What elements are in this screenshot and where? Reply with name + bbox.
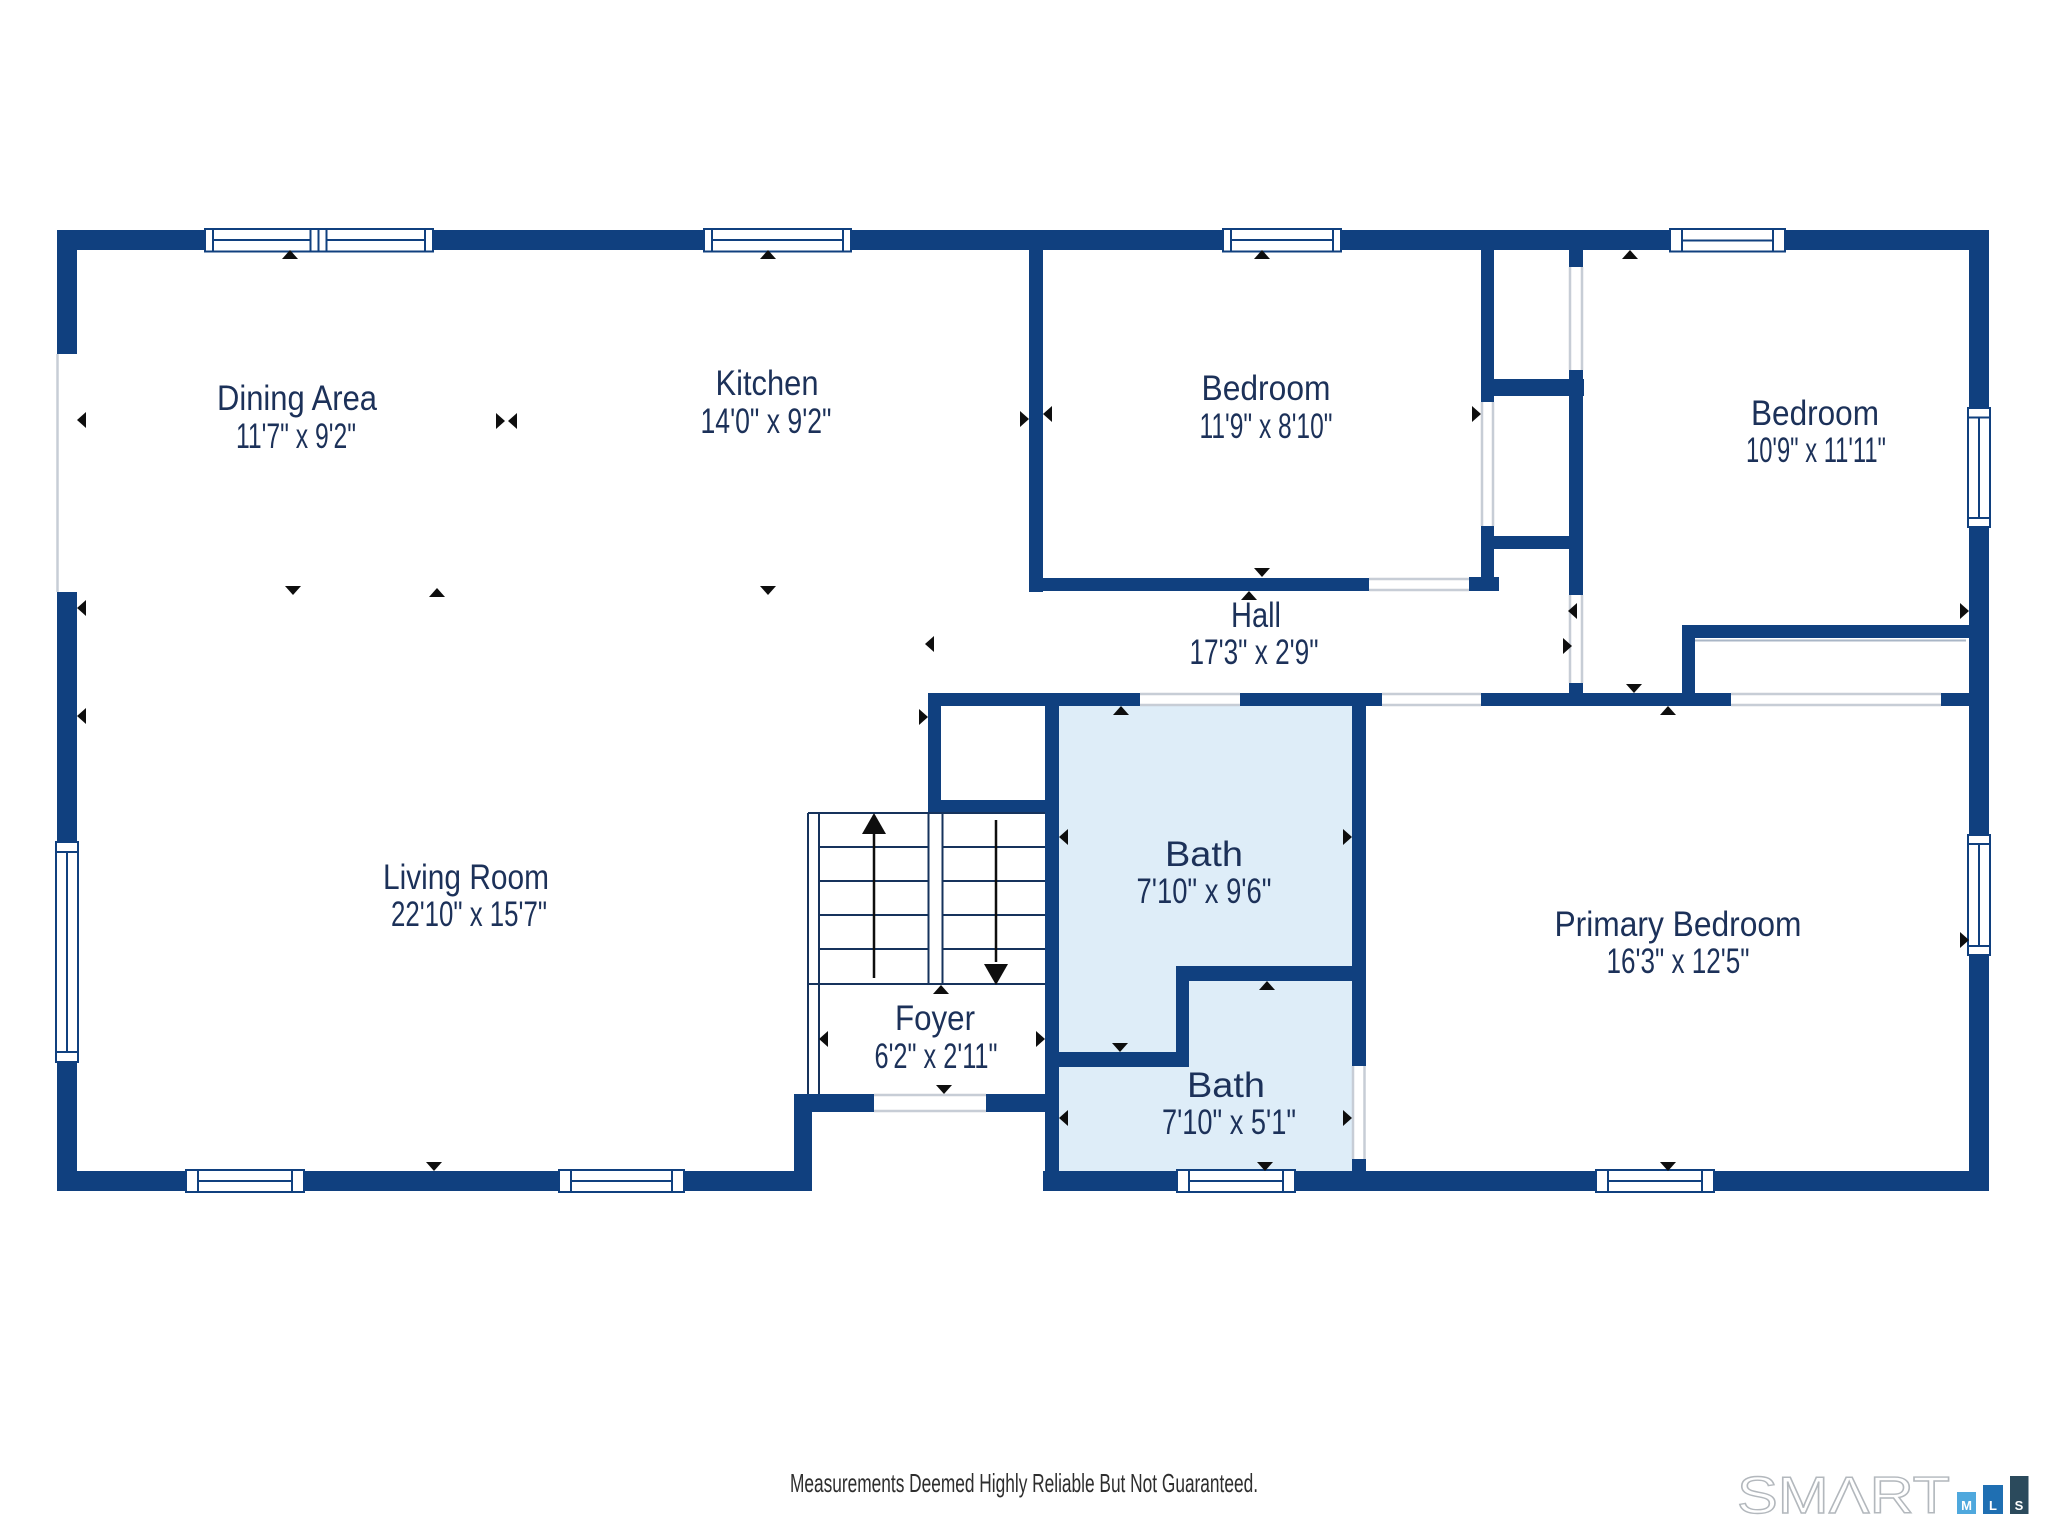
svg-text:Primary Bedroom: Primary Bedroom: [1555, 905, 1802, 944]
svg-text:Kitchen: Kitchen: [716, 364, 819, 403]
svg-text:6'2" x 2'11": 6'2" x 2'11": [875, 1037, 998, 1076]
svg-text:Bath: Bath: [1165, 835, 1243, 874]
svg-text:14'0" x 9'2": 14'0" x 9'2": [701, 402, 832, 441]
svg-text:Dining Area: Dining Area: [217, 379, 377, 418]
svg-text:11'7" x 9'2": 11'7" x 9'2": [236, 417, 356, 456]
svg-text:17'3" x 2'9": 17'3" x 2'9": [1190, 633, 1319, 672]
svg-text:Bedroom: Bedroom: [1751, 394, 1879, 433]
svg-text:M: M: [1961, 1498, 1972, 1513]
svg-text:Measurements Deemed Highly Rel: Measurements Deemed Highly Reliable But …: [790, 1468, 1258, 1498]
svg-text:7'10" x 5'1": 7'10" x 5'1": [1162, 1103, 1296, 1142]
svg-text:Foyer: Foyer: [895, 999, 975, 1038]
svg-text:S: S: [2015, 1498, 2024, 1513]
svg-text:Hall: Hall: [1231, 596, 1281, 635]
svg-text:7'10" x 9'6": 7'10" x 9'6": [1137, 872, 1272, 911]
svg-text:22'10" x 15'7": 22'10" x 15'7": [391, 895, 547, 934]
svg-text:16'3" x 12'5": 16'3" x 12'5": [1607, 942, 1750, 981]
svg-text:L: L: [1989, 1498, 1997, 1513]
svg-text:Living Room: Living Room: [383, 858, 549, 897]
svg-text:10'9" x 11'11": 10'9" x 11'11": [1746, 431, 1886, 470]
svg-text:SMΛRT: SMΛRT: [1737, 1467, 1950, 1525]
svg-text:Bedroom: Bedroom: [1202, 369, 1331, 408]
svg-text:Bath: Bath: [1187, 1066, 1265, 1105]
svg-text:11'9" x 8'10": 11'9" x 8'10": [1200, 407, 1333, 446]
